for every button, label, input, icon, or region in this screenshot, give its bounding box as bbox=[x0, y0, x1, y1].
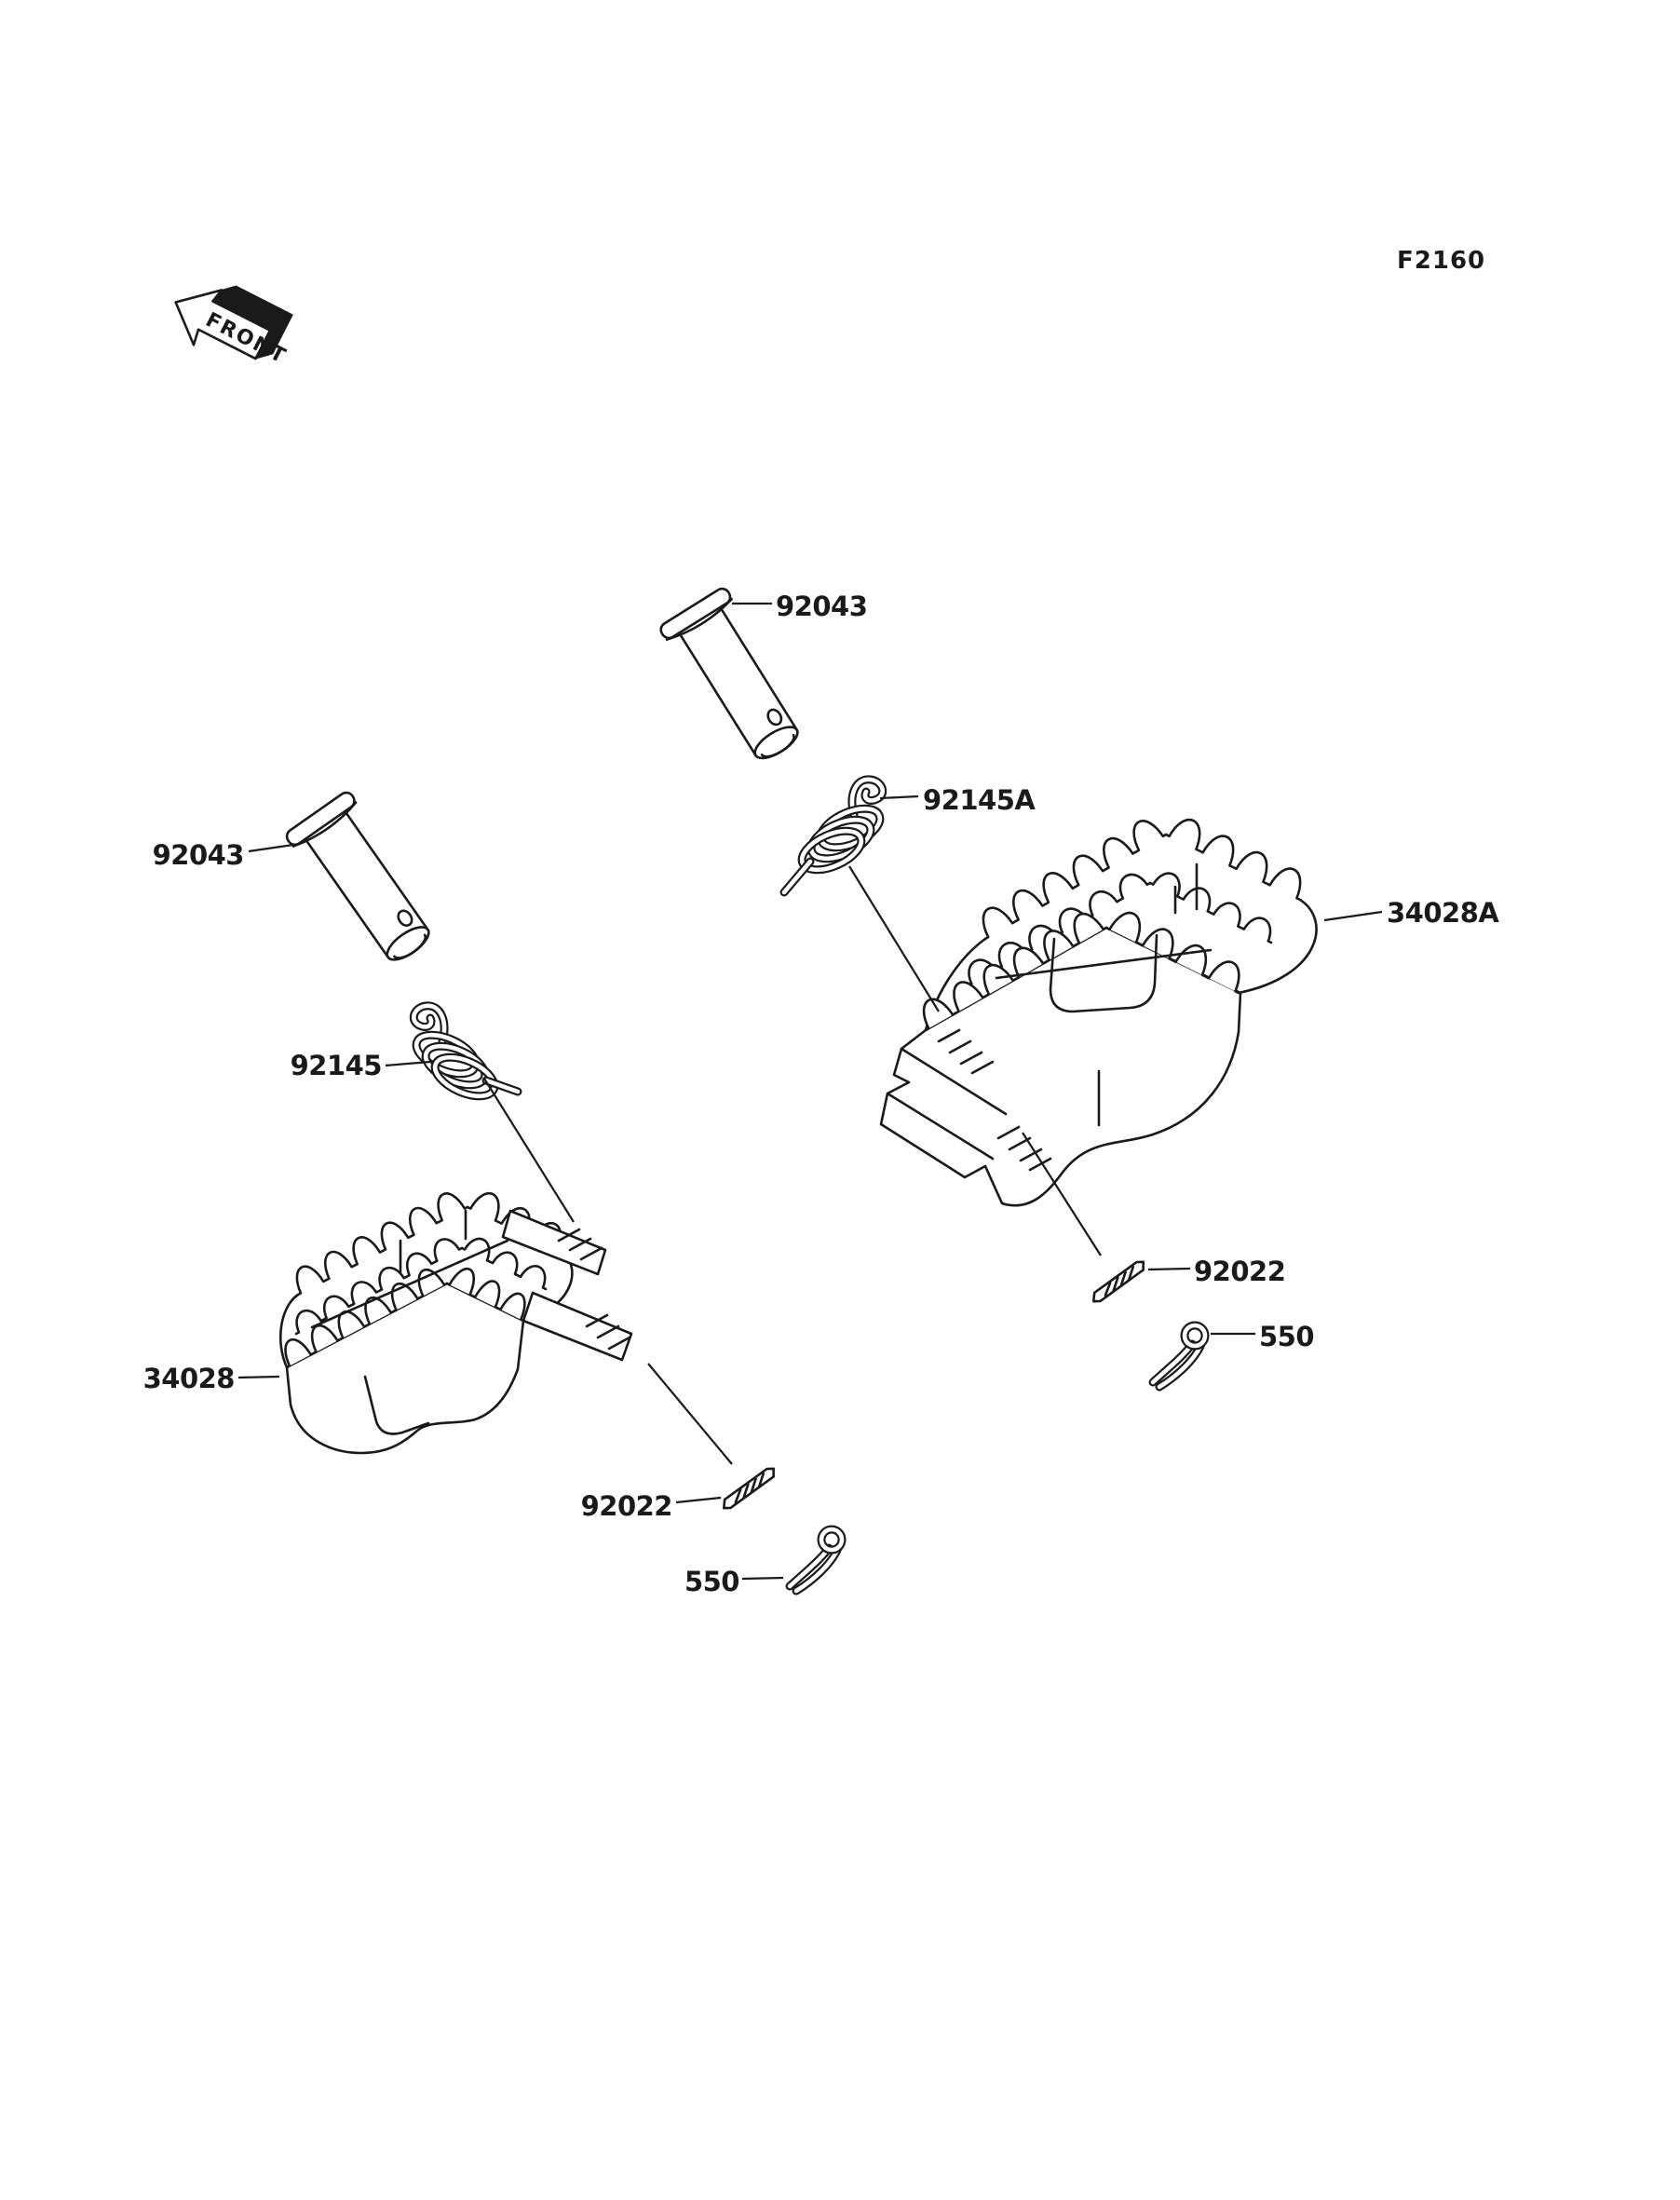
leader-footpeg-right bbox=[1324, 912, 1382, 920]
part-spring-right bbox=[784, 780, 886, 892]
footpeg-right-teeth-back-2 bbox=[1166, 820, 1300, 900]
leader-dowel-left bbox=[676, 1498, 721, 1502]
part-dowel-left bbox=[720, 1466, 779, 1512]
leader-cotter-left bbox=[742, 1578, 783, 1579]
label-pin-upper: 92043 bbox=[776, 591, 867, 622]
part-spring-left bbox=[411, 1006, 518, 1105]
leader-dowel-right bbox=[1148, 1269, 1190, 1270]
parts-diagram-canvas: FRONT F2160 bbox=[0, 0, 1680, 2200]
leader-pin-left bbox=[249, 844, 300, 851]
label-dowel-left: 92022 bbox=[581, 1490, 672, 1522]
part-cotter-left bbox=[790, 1529, 842, 1591]
part-footpeg-left bbox=[280, 1193, 631, 1453]
leader-footpeg-left-to-dowel bbox=[648, 1364, 732, 1464]
part-pin-left bbox=[284, 790, 446, 974]
footpeg-left-lug-lower bbox=[523, 1293, 631, 1360]
label-footpeg-left: 34028 bbox=[143, 1363, 235, 1394]
leader-footpeg-left bbox=[238, 1377, 279, 1378]
label-cotter-right: 550 bbox=[1259, 1321, 1314, 1352]
part-cotter-right bbox=[1153, 1325, 1205, 1387]
part-footpeg-right bbox=[881, 820, 1317, 1205]
leader-spring-right bbox=[880, 796, 918, 798]
footpeg-left-lug-upper bbox=[503, 1211, 605, 1274]
label-footpeg-right: 34028A bbox=[1387, 897, 1499, 929]
label-spring-left: 92145 bbox=[291, 1050, 382, 1081]
footpeg-right-tip-cap bbox=[1239, 900, 1317, 993]
spring-right-tail-inner bbox=[784, 862, 810, 892]
footpeg-left-body bbox=[287, 1283, 523, 1453]
label-spring-right: 92145A bbox=[923, 784, 1036, 816]
leader-spring-right-to-footpeg bbox=[849, 866, 939, 1012]
label-dowel-right: 92022 bbox=[1194, 1256, 1285, 1287]
front-direction-marker: FRONT bbox=[162, 265, 305, 385]
part-dowel-right bbox=[1090, 1259, 1148, 1305]
label-cotter-left: 550 bbox=[684, 1566, 739, 1597]
parts-diagram-page: FRONT F2160 bbox=[0, 0, 1680, 2200]
label-pin-left: 92043 bbox=[153, 839, 244, 871]
figure-code: F2160 bbox=[1397, 247, 1485, 275]
